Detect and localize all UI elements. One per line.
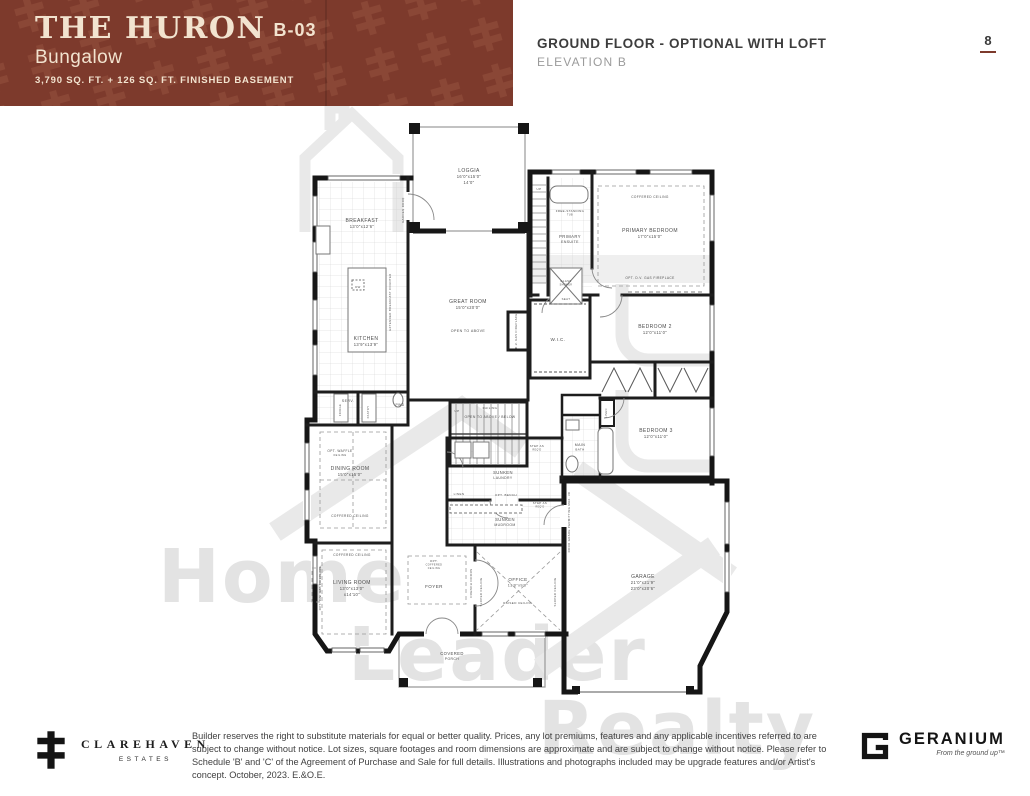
room-label-seat: SEAT [562,297,571,301]
room-label-glass-shower: GLASSSHOWER [560,279,573,286]
geranium-logo: GERANIUM From the ground up™ [860,730,1005,762]
room-label-garage: GARAGE21'0"x21'9"23'0"x20'6" [631,574,656,591]
room-label-extended-counter: EXTENDED BREAKFAST COUNTER [388,273,392,330]
geranium-mark-icon [860,730,890,762]
room-label-raised-ceiling: RAISED CEILING [503,601,533,605]
clarehaven-mark-icon [33,726,69,774]
geranium-tagline: From the ground up™ [899,750,1005,757]
room-label-covered-porch: COVEREDPORCH [440,651,464,661]
room-label-up-loft: UP [537,187,542,191]
room-label-loggia: LOGGIA16'0"x15'0"14'0" [457,168,482,185]
room-label-bedroom-2: BEDROOM 212'0"x11'0" [638,324,672,335]
room-label-up-stairs: UP [455,409,460,413]
room-label-railing: RAILING [483,406,498,410]
sheet-title: GROUND FLOOR - OPTIONAL WITH LOFT [537,36,827,51]
room-label-linen-hall: LINEN [604,408,608,418]
room-label-breakfast: BREAKFAST13'0"x12'6" [345,218,378,229]
title-banner: THE HURONB-03 Bungalow 3,790 SQ. FT. + 1… [0,0,513,106]
page-number: 8 [978,33,998,53]
room-label-fridge: FRIDGE [338,404,342,416]
plan-code: B-03 [273,20,316,40]
room-label-primary-bedroom: PRIMARY BEDROOM17'0"x15'0" [622,228,678,239]
page: Home Leader Realty [0,0,1030,796]
room-label-main-bath: MAINBATH [575,443,586,451]
room-label-office: OFFICE13'0"x9'0" [508,577,529,588]
room-label-opt-fireplace-living: OPT. D.V. GAS FIREPLACE [318,566,322,610]
porch-structure [399,636,545,687]
room-label-coffered-living: COFFERED CEILING [333,553,371,557]
room-label-great-room: GREAT ROOM15'0"x20'0" [449,299,487,310]
room-label-open-above-below: OPEN TO ABOVE / BELOW [464,415,515,419]
disclaimer-text: Builder reserves the right to substitute… [192,730,840,782]
room-label-coffered-primary: COFFERED CEILING [631,195,669,199]
footer: CLAREHAVEN ESTATES Builder reserves the … [0,718,1030,796]
clarehaven-logo: CLAREHAVEN ESTATES [33,726,210,774]
room-label-opt-waffle: OPT. WAFFLECEILING [327,449,352,457]
room-label-foyer: FOYER [425,584,443,589]
room-label-coffered-dining: COFFERED CEILING [331,514,369,518]
plan-sqft: 3,790 SQ. FT. + 126 SQ. FT. FINISHED BAS… [35,75,317,86]
room-label-french-doors: FRENCH DOORS [469,568,473,597]
room-label-sloped-ceiling-1: SLOPED CEILING [479,578,483,607]
clarehaven-name: CLAREHAVEN [81,737,210,752]
room-label-door-grade: DOOR GRADE PERMITTING MAX. 3R [567,492,571,553]
room-label-dw: DW [355,285,360,289]
plan-type: Bungalow [35,47,317,69]
room-label-opt-bench: OPT. BENCH [495,493,517,497]
room-label-dv-gas-fireplace: D.V. GAS FIREPLACE [514,313,518,348]
plan-name: THE HURON [35,14,265,44]
tiled-floors [315,178,600,545]
room-label-open-to-above: OPEN TO ABOVE [451,329,486,333]
sheet-elevation: ELEVATION B [537,55,827,69]
room-label-serv: SERV. [342,399,354,403]
room-label-pantry: PANTRY [366,406,370,419]
room-label-linen-laundry: LINEN [454,492,465,496]
room-label-wic: W.I.C. [551,337,566,342]
room-label-sloped-ceiling-2: SLOPED CEILING [553,578,557,607]
clarehaven-sub: ESTATES [81,756,210,763]
room-label-opt-fireplace-primary: OPT. D.V. GAS FIREPLACE [625,276,674,280]
floor-plan: LOGGIA16'0"x15'0"14'0"GARDEN DOORBREAKFA… [0,0,1030,796]
page-number-underline [980,51,996,53]
room-label-kitchen: KITCHEN13'9"x13'9" [354,336,379,347]
banner-crease [325,0,327,106]
geranium-name: GERANIUM [899,730,1005,749]
room-label-opt-coffered-foyer: OPT.COFFEREDCEILING [426,559,443,570]
room-label-garden-door: GARDEN DOOR [401,197,405,223]
room-label-living-room: LIVING ROOM13'0"x13'0"x14'10" [333,580,371,597]
room-label-pwd: PWD [395,403,404,407]
room-label-bedroom-3: BEDROOM 312'0"x11'0" [639,428,673,439]
